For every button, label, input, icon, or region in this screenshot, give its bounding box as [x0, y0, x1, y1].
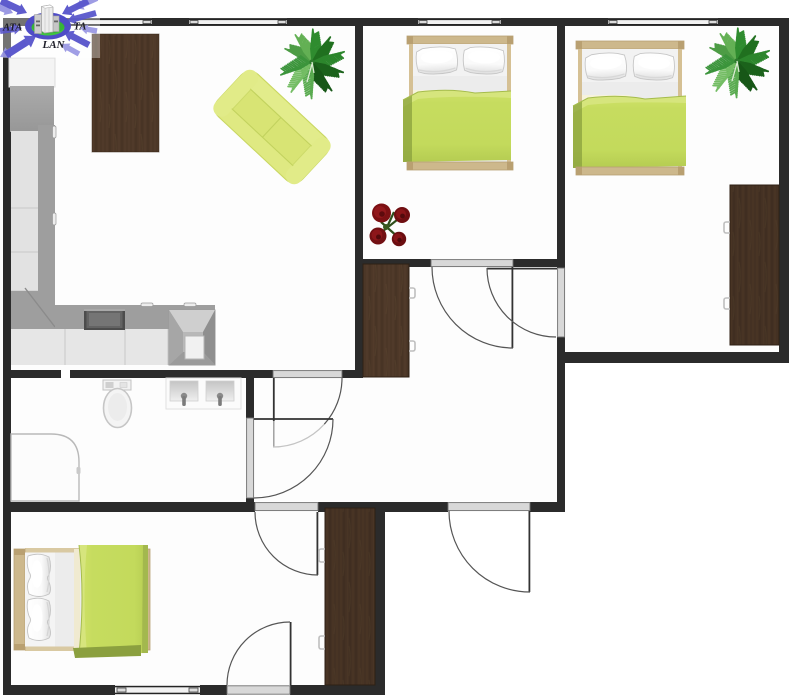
svg-text:LAN: LAN	[42, 39, 66, 51]
svg-text:ATA: ATA	[2, 23, 22, 34]
svg-text:TA: TA	[74, 22, 87, 33]
